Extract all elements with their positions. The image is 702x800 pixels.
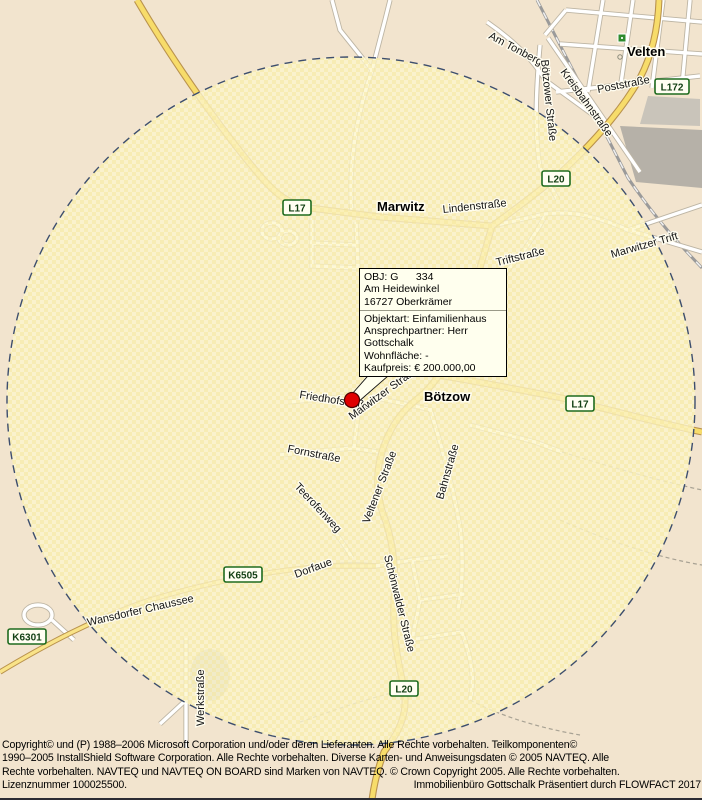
copyright-footer: Copyright© und (P) 1988–2006 Microsoft C… — [2, 739, 701, 793]
svg-text:K6301: K6301 — [12, 633, 42, 644]
property-tooltip: OBJ: G 334 Am Heidewinkel 16727 Oberkräm… — [359, 268, 507, 377]
road-sign: K6505 — [224, 567, 262, 582]
svg-text:K6505: K6505 — [228, 571, 258, 582]
road-sign: L17 — [566, 396, 594, 411]
tooltip-ansprechpartner: Ansprechpartner: Herr Gottschalk — [364, 325, 502, 350]
branding-flowfact: Immobilienbüro Gottschalk Präsentiert du… — [414, 779, 701, 792]
map-window: Lindenstraße Triftstraße Marwitzer Trift… — [0, 0, 702, 800]
copyright-line-2: 1990–2005 InstallShield Software Corpora… — [2, 752, 701, 765]
road-sign: L17 — [283, 200, 311, 215]
road-sign: L20 — [390, 681, 418, 696]
road-sign: L172 — [655, 79, 689, 94]
svg-text:L20: L20 — [395, 685, 413, 696]
town-label-boetzow: Bötzow — [424, 389, 471, 404]
tooltip-objektart: Objektart: Einfamilienhaus — [364, 313, 502, 325]
tooltip-kaufpreis: Kaufpreis: € 200.000,00 — [364, 362, 502, 374]
town-label-marwitz: Marwitz — [377, 199, 425, 214]
tooltip-object-id: OBJ: G 334 — [364, 271, 502, 283]
svg-text:L20: L20 — [547, 175, 565, 186]
svg-text:L172: L172 — [661, 83, 684, 94]
copyright-line-3: Rechte vorbehalten. NAVTEQ und NAVTEQ ON… — [2, 766, 701, 779]
tooltip-wohnflaeche: Wohnfläche: - — [364, 350, 502, 362]
svg-text:L17: L17 — [288, 204, 306, 215]
svg-text:L17: L17 — [571, 400, 589, 411]
road-sign: L20 — [542, 171, 570, 186]
road-sign: K6301 — [8, 629, 46, 644]
tooltip-street: Am Heidewinkel — [364, 283, 502, 295]
license-number: Lizenznummer 100025500. — [2, 779, 127, 792]
property-marker[interactable] — [345, 393, 360, 408]
map-canvas[interactable]: Lindenstraße Triftstraße Marwitzer Trift… — [0, 0, 702, 800]
tooltip-city: 16727 Oberkrämer — [364, 296, 502, 308]
copyright-line-1: Copyright© und (P) 1988–2006 Microsoft C… — [2, 739, 701, 752]
street-label: Werkstraße — [195, 669, 207, 726]
town-label-velten: Velten — [627, 44, 665, 59]
